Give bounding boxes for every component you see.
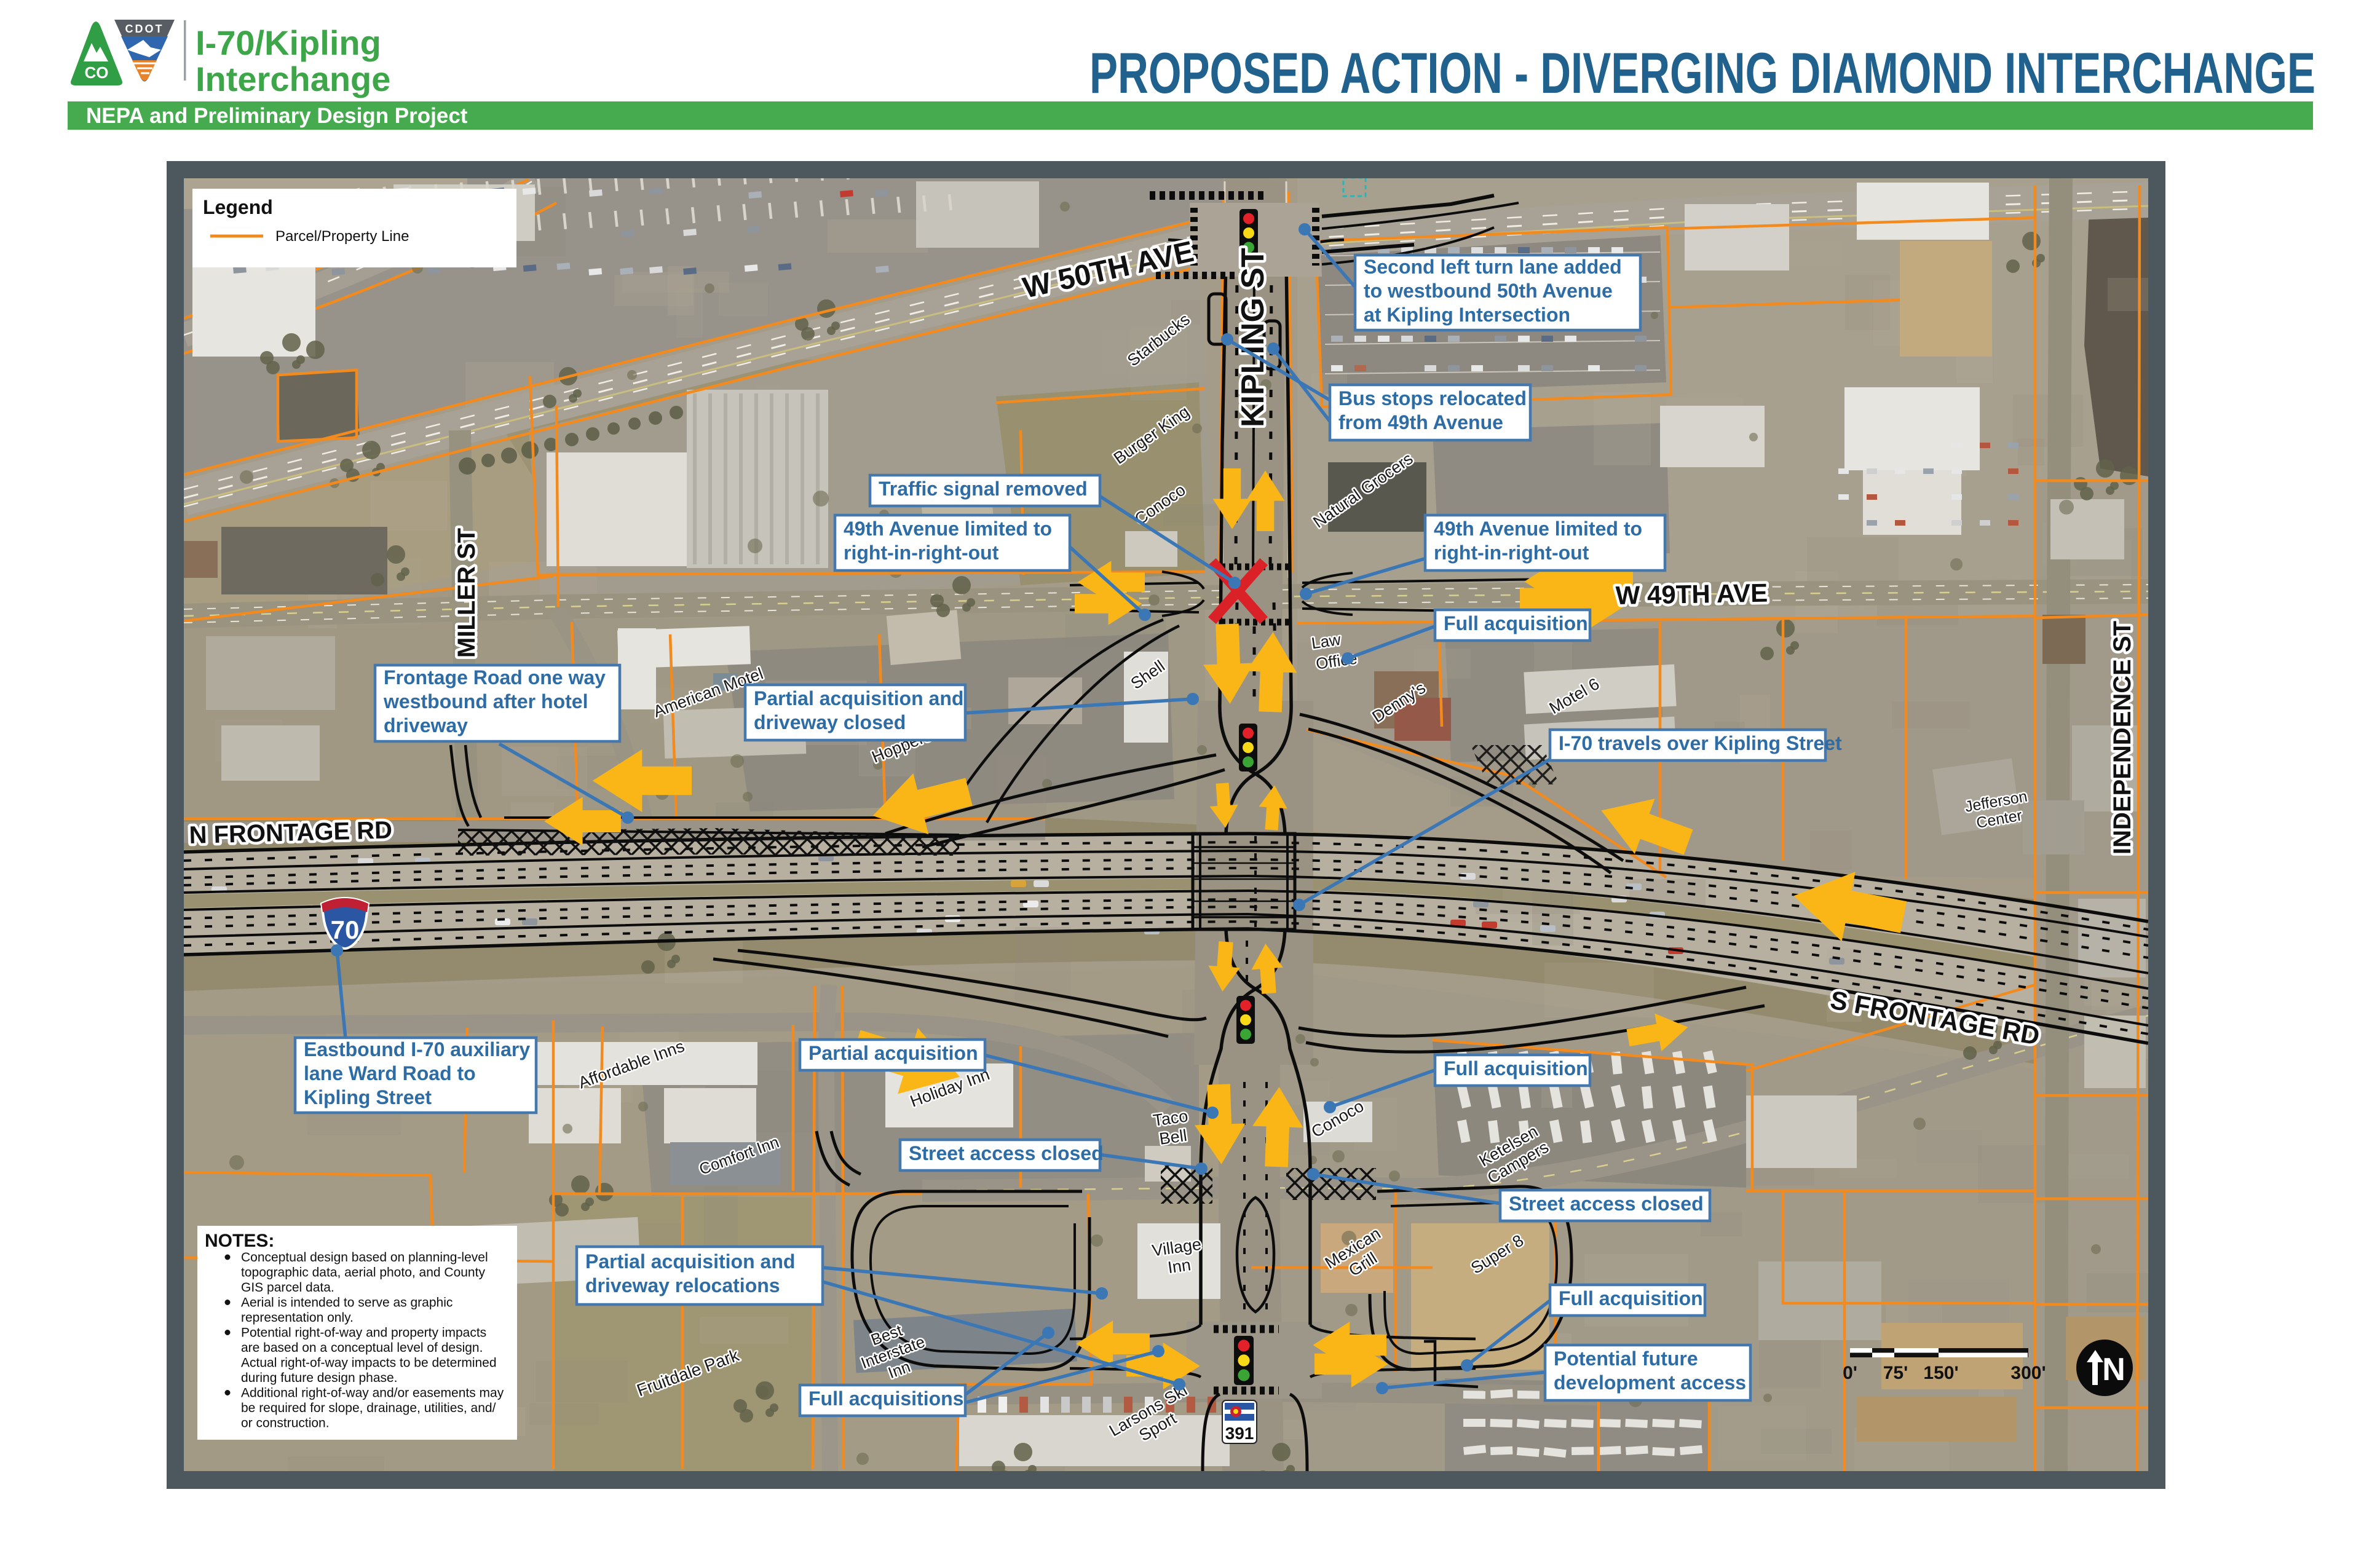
svg-text:to westbound 50th Avenue: to westbound 50th Avenue [1364, 280, 1613, 302]
svg-text:Street access closed: Street access closed [909, 1142, 1104, 1164]
svg-text:Frontage Road one way: Frontage Road one way [384, 666, 606, 689]
svg-text:Potential right-of-way and pro: Potential right-of-way and property impa… [241, 1326, 486, 1340]
svg-text:Kipling Street: Kipling Street [304, 1086, 432, 1108]
svg-text:representation only.: representation only. [241, 1311, 354, 1325]
svg-text:Actual right-of-way impacts to: Actual right-of-way impacts to be determ… [241, 1356, 497, 1370]
svg-text:GIS parcel data.: GIS parcel data. [241, 1281, 334, 1295]
svg-text:Eastbound I-70 auxiliary: Eastbound I-70 auxiliary [304, 1038, 530, 1060]
svg-text:driveway relocations: driveway relocations [585, 1274, 780, 1296]
svg-text:topographic data, aerial photo: topographic data, aerial photo, and Coun… [241, 1266, 485, 1280]
svg-text:N: N [2102, 1352, 2125, 1387]
svg-text:Inn: Inn [1166, 1255, 1192, 1277]
svg-text:right-in-right-out: right-in-right-out [844, 542, 999, 564]
svg-text:Legend: Legend [203, 196, 273, 218]
svg-text:Aerial is intended to serve as: Aerial is intended to serve as graphic [241, 1296, 453, 1310]
svg-text:Partial acquisition and: Partial acquisition and [754, 687, 963, 709]
svg-text:Parcel/Property Line: Parcel/Property Line [275, 228, 409, 245]
svg-text:N FRONTAGE RD: N FRONTAGE RD [189, 816, 392, 849]
svg-text:75': 75' [1883, 1363, 1908, 1383]
svg-text:391: 391 [1225, 1424, 1254, 1443]
svg-text:Partial acquisition and: Partial acquisition and [585, 1250, 795, 1273]
svg-text:I-70 travels over Kipling Stre: I-70 travels over Kipling Street [1559, 732, 1842, 754]
svg-text:49th Avenue limited to: 49th Avenue limited to [1434, 518, 1642, 540]
svg-text:Full acquisitions: Full acquisitions [808, 1387, 963, 1410]
svg-text:Additional right-of-way and/or: Additional right-of-way and/or easements… [241, 1386, 504, 1400]
svg-text:Potential future: Potential future [1554, 1348, 1698, 1370]
svg-text:at Kipling Intersection: at Kipling Intersection [1364, 304, 1570, 326]
svg-text:49th Avenue limited to: 49th Avenue limited to [844, 518, 1052, 540]
svg-text:westbound after hotel: westbound after hotel [383, 690, 588, 712]
svg-text:Full acquisition: Full acquisition [1559, 1287, 1703, 1309]
svg-text:or construction.: or construction. [241, 1416, 330, 1431]
svg-text:300': 300' [2010, 1363, 2046, 1383]
svg-text:Full acquisition: Full acquisition [1444, 612, 1588, 634]
svg-text:NOTES:: NOTES: [205, 1231, 274, 1251]
svg-text:development access: development access [1554, 1371, 1746, 1394]
svg-text:NEPA and Preliminary Design Pr: NEPA and Preliminary Design Project [86, 104, 468, 128]
svg-text:CDOT: CDOT [125, 23, 164, 35]
svg-text:CO: CO [85, 63, 109, 82]
svg-text:Street access closed: Street access closed [1509, 1193, 1704, 1215]
svg-text:Interchange: Interchange [196, 60, 390, 98]
svg-text:INDEPENDENCE ST: INDEPENDENCE ST [2109, 621, 2136, 854]
svg-text:PROPOSED ACTION - DIVERGING DI: PROPOSED ACTION - DIVERGING DIAMOND INTE… [1089, 41, 2315, 105]
svg-text:driveway: driveway [384, 714, 468, 736]
svg-text:150': 150' [1923, 1363, 1958, 1383]
svg-text:during future design phase.: during future design phase. [241, 1371, 398, 1385]
svg-text:right-in-right-out: right-in-right-out [1434, 542, 1589, 564]
svg-text:be required for slope, drainag: be required for slope, drainage, utiliti… [241, 1401, 496, 1415]
svg-text:KIPLING ST: KIPLING ST [1235, 248, 1271, 427]
svg-text:Bus stops relocated: Bus stops relocated [1338, 387, 1527, 409]
svg-text:Bell: Bell [1158, 1126, 1188, 1148]
svg-text:W 49TH AVE: W 49TH AVE [1615, 578, 1768, 610]
svg-text:Conceptual design based on pla: Conceptual design based on planning-leve… [241, 1250, 488, 1265]
svg-text:Second left turn lane added: Second left turn lane added [1364, 256, 1622, 278]
svg-text:0': 0' [1843, 1363, 1857, 1383]
svg-text:from 49th Avenue: from 49th Avenue [1338, 411, 1503, 433]
svg-text:Partial acquisition: Partial acquisition [808, 1042, 978, 1064]
svg-text:70: 70 [331, 915, 360, 944]
svg-text:MILLER ST: MILLER ST [453, 528, 480, 658]
svg-text:are based on a conceptual leve: are based on a conceptual level of desig… [241, 1341, 483, 1355]
svg-text:Traffic signal removed: Traffic signal removed [879, 478, 1088, 500]
svg-text:I-70/Kipling: I-70/Kipling [196, 23, 381, 62]
svg-text:driveway closed: driveway closed [754, 711, 906, 733]
svg-text:lane Ward Road to: lane Ward Road to [304, 1062, 476, 1084]
svg-text:Full acquisition: Full acquisition [1444, 1057, 1588, 1079]
